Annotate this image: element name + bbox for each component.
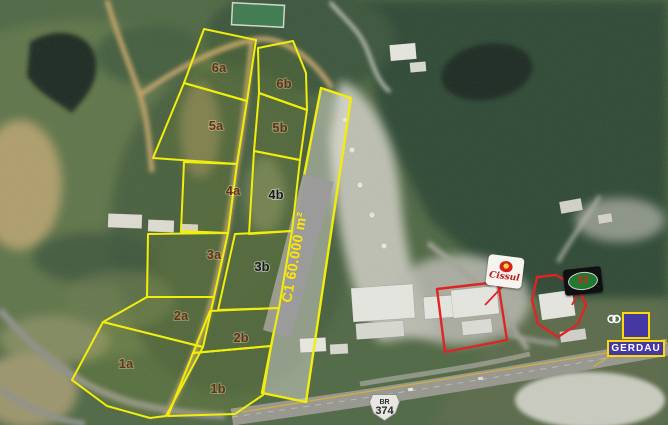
plot-label-3b: 3b <box>254 259 269 274</box>
plot-label-1a: 1a <box>119 356 134 371</box>
cissul-sign: Cissul <box>485 254 525 289</box>
plot-label-6b: 6b <box>276 76 291 91</box>
plot-label-5b: 5b <box>272 120 287 135</box>
plot-3a <box>147 233 228 297</box>
plot-label-4b: 4b <box>268 187 283 202</box>
plot-label-6a: 6a <box>212 60 227 75</box>
plot-label-2a: 2a <box>174 308 189 323</box>
gerdau-emblem-icon <box>622 312 650 339</box>
road-shield-number: 374 <box>375 406 393 417</box>
gerdau-wordmark: GERDAU <box>607 340 664 357</box>
lot53-sign-label: 53 <box>577 275 589 286</box>
aerial-plot-map: C1 60.000 m² 6a5a4a3a2a1a6b5b4b3b2b1b Ci… <box>0 0 668 425</box>
gerdau-logo: GERDAU <box>606 312 666 357</box>
lot53-sign: 53 <box>563 266 604 296</box>
cissul-sign-label: Cissul <box>488 271 520 284</box>
satellite-background: C1 60.000 m² 6a5a4a3a2a1a6b5b4b3b2b1b <box>0 0 668 425</box>
plot-label-3a: 3a <box>207 247 222 262</box>
plot-label-5a: 5a <box>209 118 224 133</box>
plot-label-2b: 2b <box>233 330 248 345</box>
plot-label-1b: 1b <box>210 381 225 396</box>
plot-label-4a: 4a <box>226 183 241 198</box>
lot53-oval-icon: 53 <box>567 270 599 291</box>
